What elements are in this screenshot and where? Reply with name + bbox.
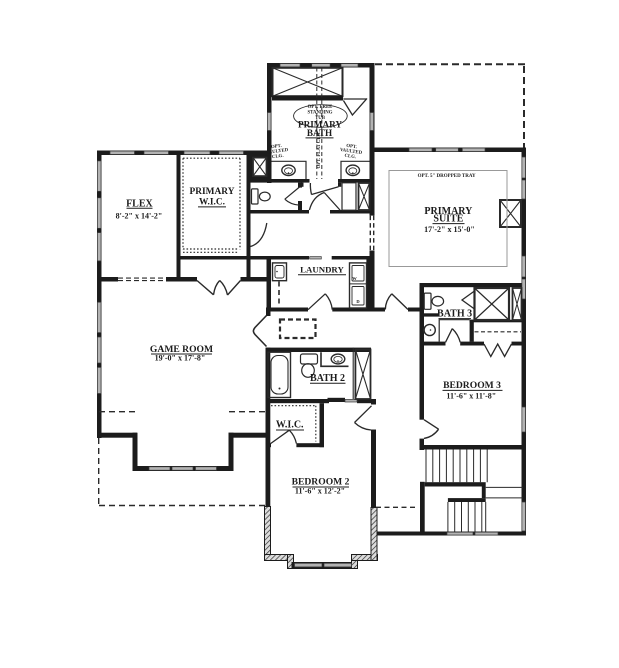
svg-text:BEDROOM 3: BEDROOM 3 <box>443 380 501 391</box>
svg-text:FLEX: FLEX <box>126 198 153 209</box>
svg-text:BATH 2: BATH 2 <box>310 373 345 384</box>
svg-text:8'-2" x 14'-2": 8'-2" x 14'-2" <box>116 212 163 221</box>
svg-text:TUB: TUB <box>315 116 326 121</box>
svg-text:W.I.C.: W.I.C. <box>276 420 304 431</box>
svg-text:W.I.C.: W.I.C. <box>199 198 225 208</box>
svg-text:11'-6" x 12'-2": 11'-6" x 12'-2" <box>295 487 345 496</box>
svg-text:PRIMARY: PRIMARY <box>190 187 235 197</box>
svg-text:W: W <box>352 276 357 281</box>
svg-text:BATH 3: BATH 3 <box>437 309 472 320</box>
svg-text:LAUNDRY: LAUNDRY <box>300 264 344 274</box>
svg-text:OPT. FLAT CLG.: OPT. FLAT CLG. <box>317 131 322 168</box>
svg-text:OPT. FREE: OPT. FREE <box>308 105 333 110</box>
svg-text:STANDING: STANDING <box>308 111 333 116</box>
svg-text:OPT. 5" DROPPED TRAY: OPT. 5" DROPPED TRAY <box>418 174 476 179</box>
svg-text:11'-6" x 11'-8": 11'-6" x 11'-8" <box>446 392 496 401</box>
svg-text:SUITE: SUITE <box>433 214 463 225</box>
svg-text:17'-2" x 15'-0": 17'-2" x 15'-0" <box>424 225 475 234</box>
svg-text:19'-0" x 17'-8": 19'-0" x 17'-8" <box>155 354 206 363</box>
